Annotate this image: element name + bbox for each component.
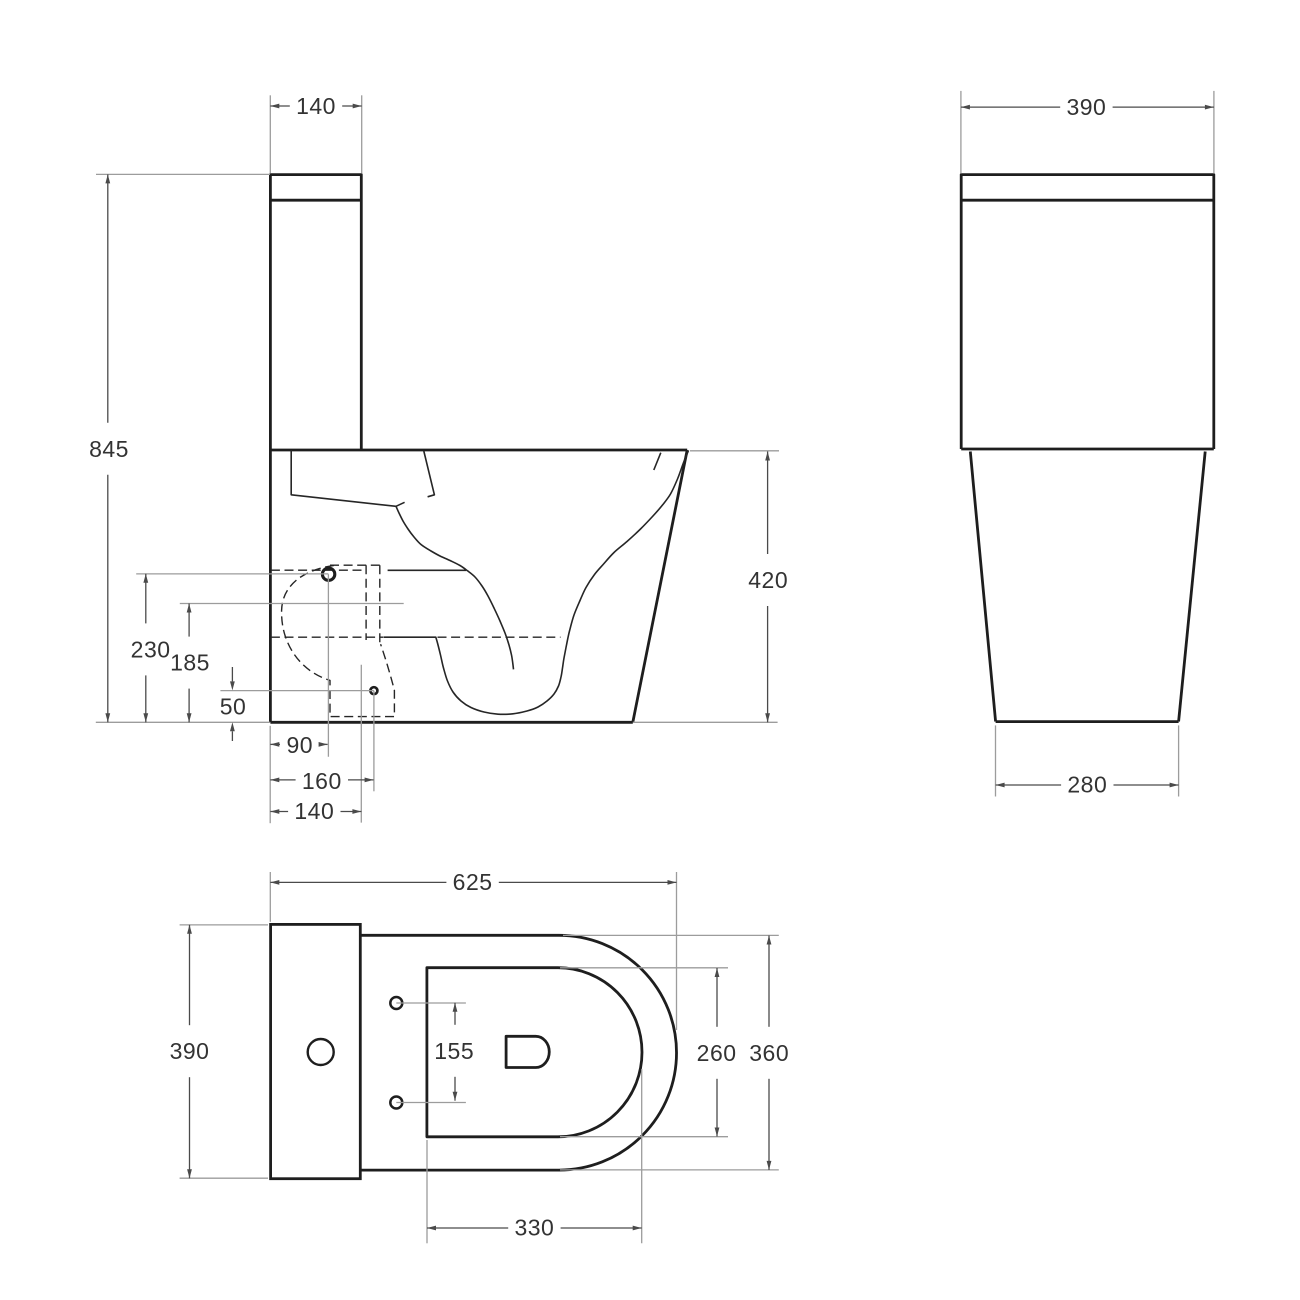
svg-text:390: 390	[170, 1038, 210, 1064]
svg-text:230: 230	[131, 636, 171, 662]
svg-text:845: 845	[89, 436, 129, 462]
svg-text:140: 140	[294, 798, 334, 824]
svg-text:625: 625	[453, 869, 493, 895]
svg-text:330: 330	[514, 1215, 554, 1241]
svg-text:160: 160	[302, 768, 342, 794]
svg-text:185: 185	[170, 650, 210, 676]
svg-text:90: 90	[287, 732, 314, 758]
svg-text:140: 140	[296, 93, 336, 119]
svg-text:280: 280	[1067, 771, 1107, 797]
svg-text:50: 50	[220, 694, 247, 720]
svg-text:260: 260	[697, 1040, 737, 1066]
svg-text:155: 155	[434, 1038, 474, 1064]
svg-text:390: 390	[1066, 94, 1106, 120]
svg-text:360: 360	[749, 1040, 789, 1066]
svg-text:420: 420	[748, 567, 788, 593]
